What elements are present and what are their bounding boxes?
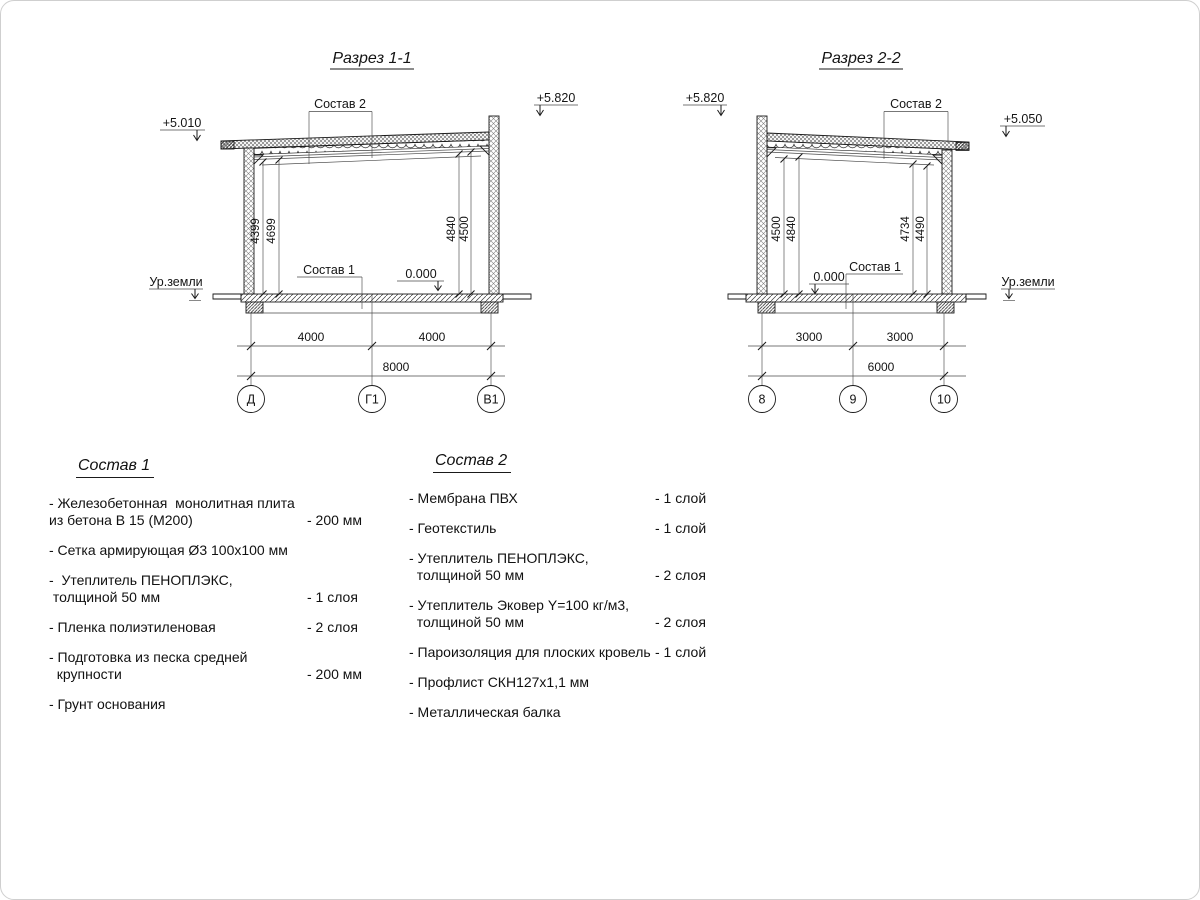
elevation-mark: +5.820 <box>537 91 576 105</box>
material-item: - Утеплитель ПЕНОПЛЭКС, толщиной 50 мм -… <box>409 550 719 584</box>
footing-left <box>758 302 775 313</box>
height-dim: 4840 <box>786 216 798 242</box>
footing-left <box>246 302 263 313</box>
section-1-1-drawing: Разрез 1-1 4000 4000 <box>91 31 591 421</box>
level-arrow-icon <box>194 130 201 141</box>
height-dim: 4734 <box>900 216 912 242</box>
roof-composition-callout: Состав 2 <box>314 97 366 111</box>
right-wall <box>942 150 952 294</box>
level-arrow-icon <box>192 289 199 299</box>
level-arrow-icon <box>1003 126 1010 137</box>
footing-right <box>937 302 954 313</box>
footing-right <box>481 302 498 313</box>
span-dim: 4000 <box>419 330 446 344</box>
elevation-mark: +5.010 <box>163 116 202 130</box>
roof-eave-cap <box>221 141 234 149</box>
composition-1-title: Состав 1 <box>76 457 154 478</box>
axis-label: Г1 <box>365 393 379 407</box>
height-dim: 4500 <box>771 216 783 242</box>
level-arrow-icon <box>718 105 725 116</box>
composition-1-list: Состав 1 - Железобетонная монолитная пли… <box>49 457 389 726</box>
level-arrow-icon <box>435 281 442 291</box>
material-item: - Железобетонная монолитная плита из бет… <box>49 495 389 529</box>
level-arrow-icon <box>537 105 544 116</box>
material-item: - Грунт основания <box>49 696 389 713</box>
axis-label: 8 <box>759 393 766 407</box>
elevation-mark: +5.820 <box>686 91 725 105</box>
span-dim: 3000 <box>887 330 914 344</box>
height-dim: 4699 <box>266 218 278 244</box>
section-2-2-drawing: Разрез 2-2 3000 3000 <box>641 31 1101 421</box>
drawing-sheet: Разрез 1-1 4000 4000 <box>0 0 1200 900</box>
material-item: - Пленка полиэтиленовая - 2 слоя <box>49 619 389 636</box>
total-span-dim: 8000 <box>383 360 410 374</box>
zero-level-mark: 0.000 <box>405 267 436 281</box>
zero-level-mark: 0.000 <box>813 270 844 284</box>
ground-level-label: Ур.земли <box>1001 275 1054 289</box>
material-item: - Мембрана ПВХ - 1 слой <box>409 490 719 507</box>
beam-bottom-line <box>262 156 481 165</box>
total-span-dim: 6000 <box>868 360 895 374</box>
axis-label: 10 <box>937 393 951 407</box>
left-wall-parapet <box>757 116 767 294</box>
composition-2-title: Состав 2 <box>433 452 511 473</box>
floor-ledge-right <box>966 294 986 299</box>
right-wall-parapet <box>489 116 499 294</box>
floor-ledge-left <box>213 294 241 299</box>
material-item: - Геотекстиль - 1 слой <box>409 520 719 537</box>
material-item: - Пароизоляция для плоских кровель - 1 с… <box>409 644 719 661</box>
material-item: - Металлическая балка <box>409 704 719 721</box>
axis-label: Д <box>247 393 256 407</box>
floor-composition-callout: Состав 1 <box>849 260 901 274</box>
floor-slab <box>746 294 966 302</box>
ground-level-label: Ур.земли <box>149 275 202 289</box>
height-dim: 4840 <box>446 216 458 242</box>
composition-2-list: Состав 2 - Мембрана ПВХ - 1 слой - Геоте… <box>409 452 719 734</box>
level-arrow-icon <box>812 284 819 294</box>
roof-eave-cap <box>956 142 969 150</box>
material-item: - Профлист СКН127х1,1 мм <box>409 674 719 691</box>
axis-label: В1 <box>483 393 498 407</box>
axis-label: 9 <box>850 393 857 407</box>
elevation-mark: +5.050 <box>1004 112 1043 126</box>
section-2-2-title: Разрез 2-2 <box>821 50 900 67</box>
material-item: - Подготовка из песка средней крупности … <box>49 649 389 683</box>
span-dim: 3000 <box>796 330 823 344</box>
roof-composition-callout: Состав 2 <box>890 97 942 111</box>
height-dim: 4500 <box>459 216 471 242</box>
floor-ledge-left <box>728 294 746 299</box>
level-arrow-icon <box>1006 289 1013 299</box>
material-item: - Утеплитель ПЕНОПЛЭКС, толщиной 50 мм -… <box>49 572 389 606</box>
floor-ledge-right <box>503 294 531 299</box>
material-item: - Утеплитель Эковер Y=100 кг/м3, толщино… <box>409 597 719 631</box>
section-1-1-title: Разрез 1-1 <box>332 50 411 67</box>
span-dim: 4000 <box>298 330 325 344</box>
corner-haunch <box>480 146 489 155</box>
material-item: - Сетка армирующая Ø3 100х100 мм <box>49 542 389 559</box>
height-dim: 4399 <box>250 218 262 244</box>
height-dim: 4490 <box>915 216 927 242</box>
floor-composition-callout: Состав 1 <box>303 263 355 277</box>
